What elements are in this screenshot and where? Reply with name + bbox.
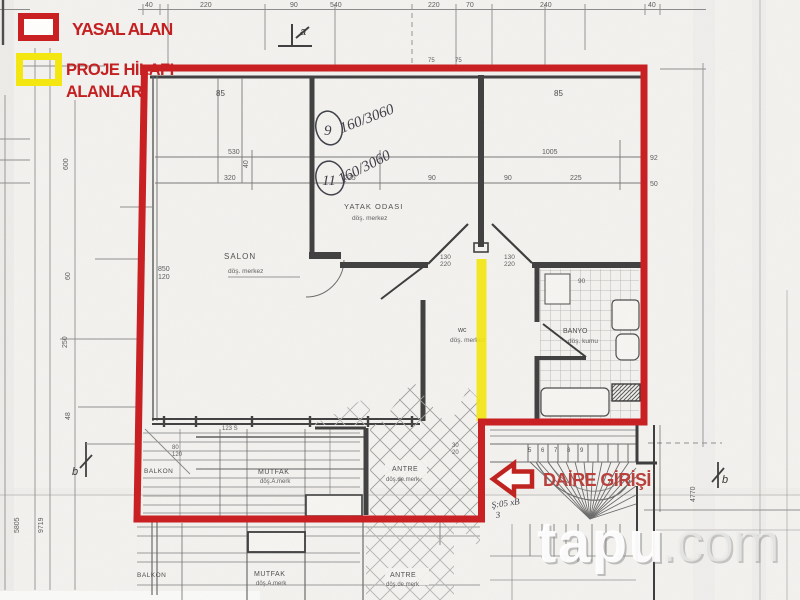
svg-text:YASAL ALAN: YASAL ALAN (72, 19, 173, 39)
svg-text:ALANLARI: ALANLARI (66, 83, 146, 101)
svg-text:tapu: tapu (537, 510, 665, 575)
svg-text:.com: .com (661, 510, 778, 573)
svg-text:DAİRE GİRİŞİ: DAİRE GİRİŞİ (543, 470, 651, 490)
